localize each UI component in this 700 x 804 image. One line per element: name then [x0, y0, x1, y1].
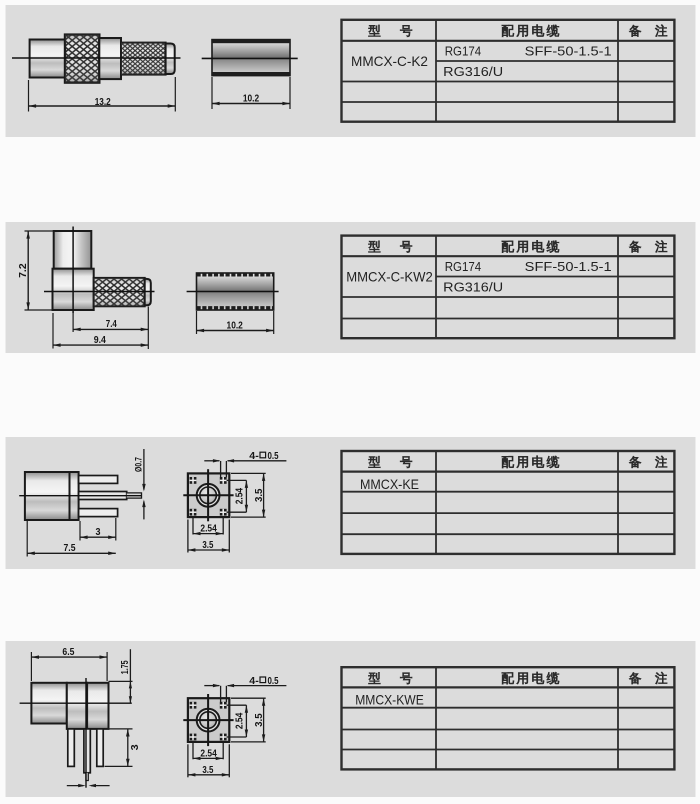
svg-text:MMCX-C-K2: MMCX-C-K2	[351, 53, 428, 69]
svg-text:Ø0.7: Ø0.7	[133, 457, 144, 472]
svg-text:6.5: 6.5	[62, 647, 74, 658]
svg-text:3.5: 3.5	[202, 765, 213, 776]
svg-text:3.5: 3.5	[254, 488, 265, 502]
svg-text:2.54: 2.54	[234, 488, 245, 505]
svg-text:RG174: RG174	[445, 259, 482, 274]
svg-text:RG316/U: RG316/U	[443, 64, 503, 79]
svg-text:7.4: 7.4	[106, 319, 117, 330]
svg-text:3.5: 3.5	[254, 713, 265, 727]
svg-text:2.54: 2.54	[200, 749, 217, 760]
svg-text:3.5: 3.5	[202, 540, 213, 551]
svg-text:SFF-50-1.5-1: SFF-50-1.5-1	[525, 259, 612, 274]
svg-text:10.2: 10.2	[227, 320, 244, 331]
svg-text:1.75: 1.75	[120, 660, 131, 674]
svg-text:10.2: 10.2	[243, 93, 260, 104]
svg-text:7.2: 7.2	[18, 263, 29, 278]
svg-text:RG174: RG174	[445, 44, 482, 59]
svg-text:3: 3	[130, 744, 141, 750]
svg-text:3: 3	[96, 527, 101, 538]
svg-text:MMCX-KWE: MMCX-KWE	[355, 692, 424, 708]
svg-text:0.5: 0.5	[268, 451, 279, 462]
svg-text:4-: 4-	[249, 676, 259, 687]
svg-text:9.4: 9.4	[94, 335, 107, 346]
svg-text:13.2: 13.2	[95, 97, 111, 108]
svg-text:4-: 4-	[249, 451, 259, 462]
svg-text:2.54: 2.54	[200, 524, 217, 535]
svg-text:MMCX-KE: MMCX-KE	[360, 476, 419, 492]
svg-text:RG316/U: RG316/U	[443, 279, 503, 294]
svg-text:MMCX-C-KW2: MMCX-C-KW2	[346, 269, 433, 285]
svg-text:0.5: 0.5	[268, 676, 279, 687]
svg-text:7.5: 7.5	[64, 543, 76, 554]
svg-text:SFF-50-1.5-1: SFF-50-1.5-1	[525, 44, 612, 59]
svg-text:2.54: 2.54	[234, 712, 245, 729]
